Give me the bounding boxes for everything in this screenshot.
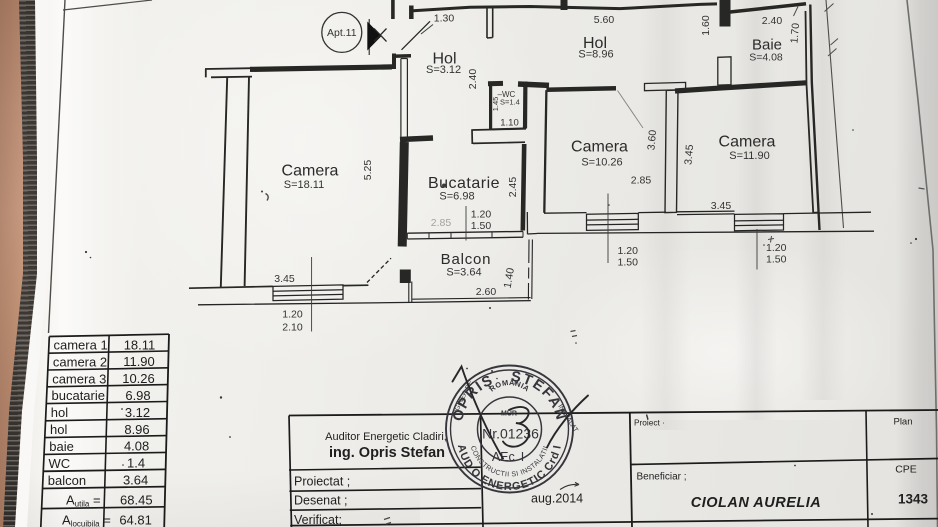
svg-text:S=1.4: S=1.4 (500, 98, 520, 107)
svg-text:WC: WC (49, 456, 71, 471)
svg-text:Beneficiar ;: Beneficiar ; (637, 472, 687, 483)
svg-text:5.25: 5.25 (362, 160, 374, 181)
svg-text:Camera: Camera (282, 163, 339, 180)
svg-text:1.50: 1.50 (618, 257, 639, 269)
svg-text:1.20: 1.20 (618, 245, 639, 257)
svg-text:2.10: 2.10 (282, 322, 303, 334)
svg-text:S=4.08: S=4.08 (749, 51, 783, 63)
svg-text:hol: hol (51, 405, 68, 420)
svg-text:2.45: 2.45 (507, 177, 519, 198)
svg-text:68.45: 68.45 (120, 493, 153, 508)
svg-text:camera 3: camera 3 (52, 371, 106, 386)
svg-text:64.81: 64.81 (119, 513, 152, 527)
svg-text:S=8.96: S=8.96 (578, 48, 613, 60)
svg-text:S=10.26: S=10.26 (581, 156, 622, 168)
svg-text:camera 1: camera 1 (54, 338, 108, 353)
svg-text:bucatarie: bucatarie (52, 388, 105, 403)
svg-text:Autila =: Autila = (66, 493, 101, 509)
svg-text:AEc I: AEc I (492, 450, 524, 464)
svg-text:Proiectat ;: Proiectat ; (294, 475, 350, 489)
svg-text:1.20: 1.20 (282, 309, 303, 321)
svg-text:8.96: 8.96 (124, 422, 149, 437)
svg-text:aug.2014: aug.2014 (531, 492, 583, 506)
svg-text:1.50: 1.50 (766, 254, 787, 266)
svg-text:2.85: 2.85 (431, 217, 452, 229)
svg-text:Plan: Plan (893, 417, 912, 428)
svg-text:6.98: 6.98 (125, 388, 150, 403)
svg-text:Auditor Energetic Cladiri,: Auditor Energetic Cladiri, (325, 431, 447, 443)
svg-text:2.85: 2.85 (631, 175, 652, 187)
svg-text:balcon: balcon (48, 473, 86, 488)
svg-text:ing. Opris Stefan: ing. Opris Stefan (329, 445, 445, 461)
svg-text:S=6.98: S=6.98 (439, 190, 474, 202)
svg-text:baie: baie (49, 439, 74, 454)
svg-text:4.08: 4.08 (124, 439, 149, 454)
svg-text:1.50: 1.50 (471, 220, 492, 232)
svg-text:Proiect ·: Proiect · (634, 418, 665, 428)
svg-text:2.60: 2.60 (476, 286, 497, 298)
svg-text:2.40: 2.40 (762, 15, 783, 27)
svg-text:Verificat;: Verificat; (294, 513, 342, 527)
svg-text:3.45: 3.45 (274, 273, 295, 285)
svg-text:3.12: 3.12 (125, 405, 150, 420)
svg-text:1.60: 1.60 (700, 15, 712, 36)
svg-text:Nr.01236: Nr.01236 (482, 426, 539, 442)
svg-text:1.20: 1.20 (471, 209, 492, 221)
svg-text:1.70: 1.70 (788, 22, 802, 44)
svg-text:1.30: 1.30 (434, 13, 455, 25)
svg-text:S=3.64: S=3.64 (446, 266, 481, 278)
svg-text:3.64: 3.64 (123, 473, 148, 488)
svg-text:1.4: 1.4 (127, 456, 145, 471)
svg-text:CPE: CPE (895, 464, 917, 476)
svg-text:2.40: 2.40 (467, 69, 479, 90)
svg-text:1.40: 1.40 (502, 267, 517, 289)
svg-text:3.45: 3.45 (711, 200, 732, 212)
svg-text:1.20: 1.20 (766, 242, 787, 254)
svg-text:1.10: 1.10 (500, 117, 519, 128)
svg-text:Desenat ;: Desenat ; (294, 494, 348, 508)
svg-text:18.11: 18.11 (124, 337, 156, 352)
svg-text:S=11.90: S=11.90 (729, 150, 769, 162)
svg-text:Apt.11: Apt.11 (327, 27, 357, 39)
svg-text:hol: hol (50, 422, 67, 437)
svg-text:1343: 1343 (898, 492, 929, 507)
svg-text:Alocuibila =: Alocuibila = (62, 513, 111, 527)
svg-text:CIOLAN AURELIA: CIOLAN AURELIA (691, 495, 822, 511)
svg-text:5.60: 5.60 (594, 14, 615, 26)
svg-text:Camera: Camera (571, 139, 628, 156)
svg-text:MUR: MUR (501, 411, 517, 418)
svg-text:Camera: Camera (719, 134, 776, 151)
svg-text:10.26: 10.26 (122, 371, 155, 386)
svg-text:S=3.12: S=3.12 (426, 64, 461, 76)
svg-text:3.60: 3.60 (645, 129, 659, 151)
svg-text:3.45: 3.45 (682, 144, 696, 166)
svg-text:camera 2: camera 2 (53, 355, 107, 370)
svg-text:S=18.11: S=18.11 (284, 179, 324, 191)
svg-text:11.90: 11.90 (123, 354, 155, 369)
